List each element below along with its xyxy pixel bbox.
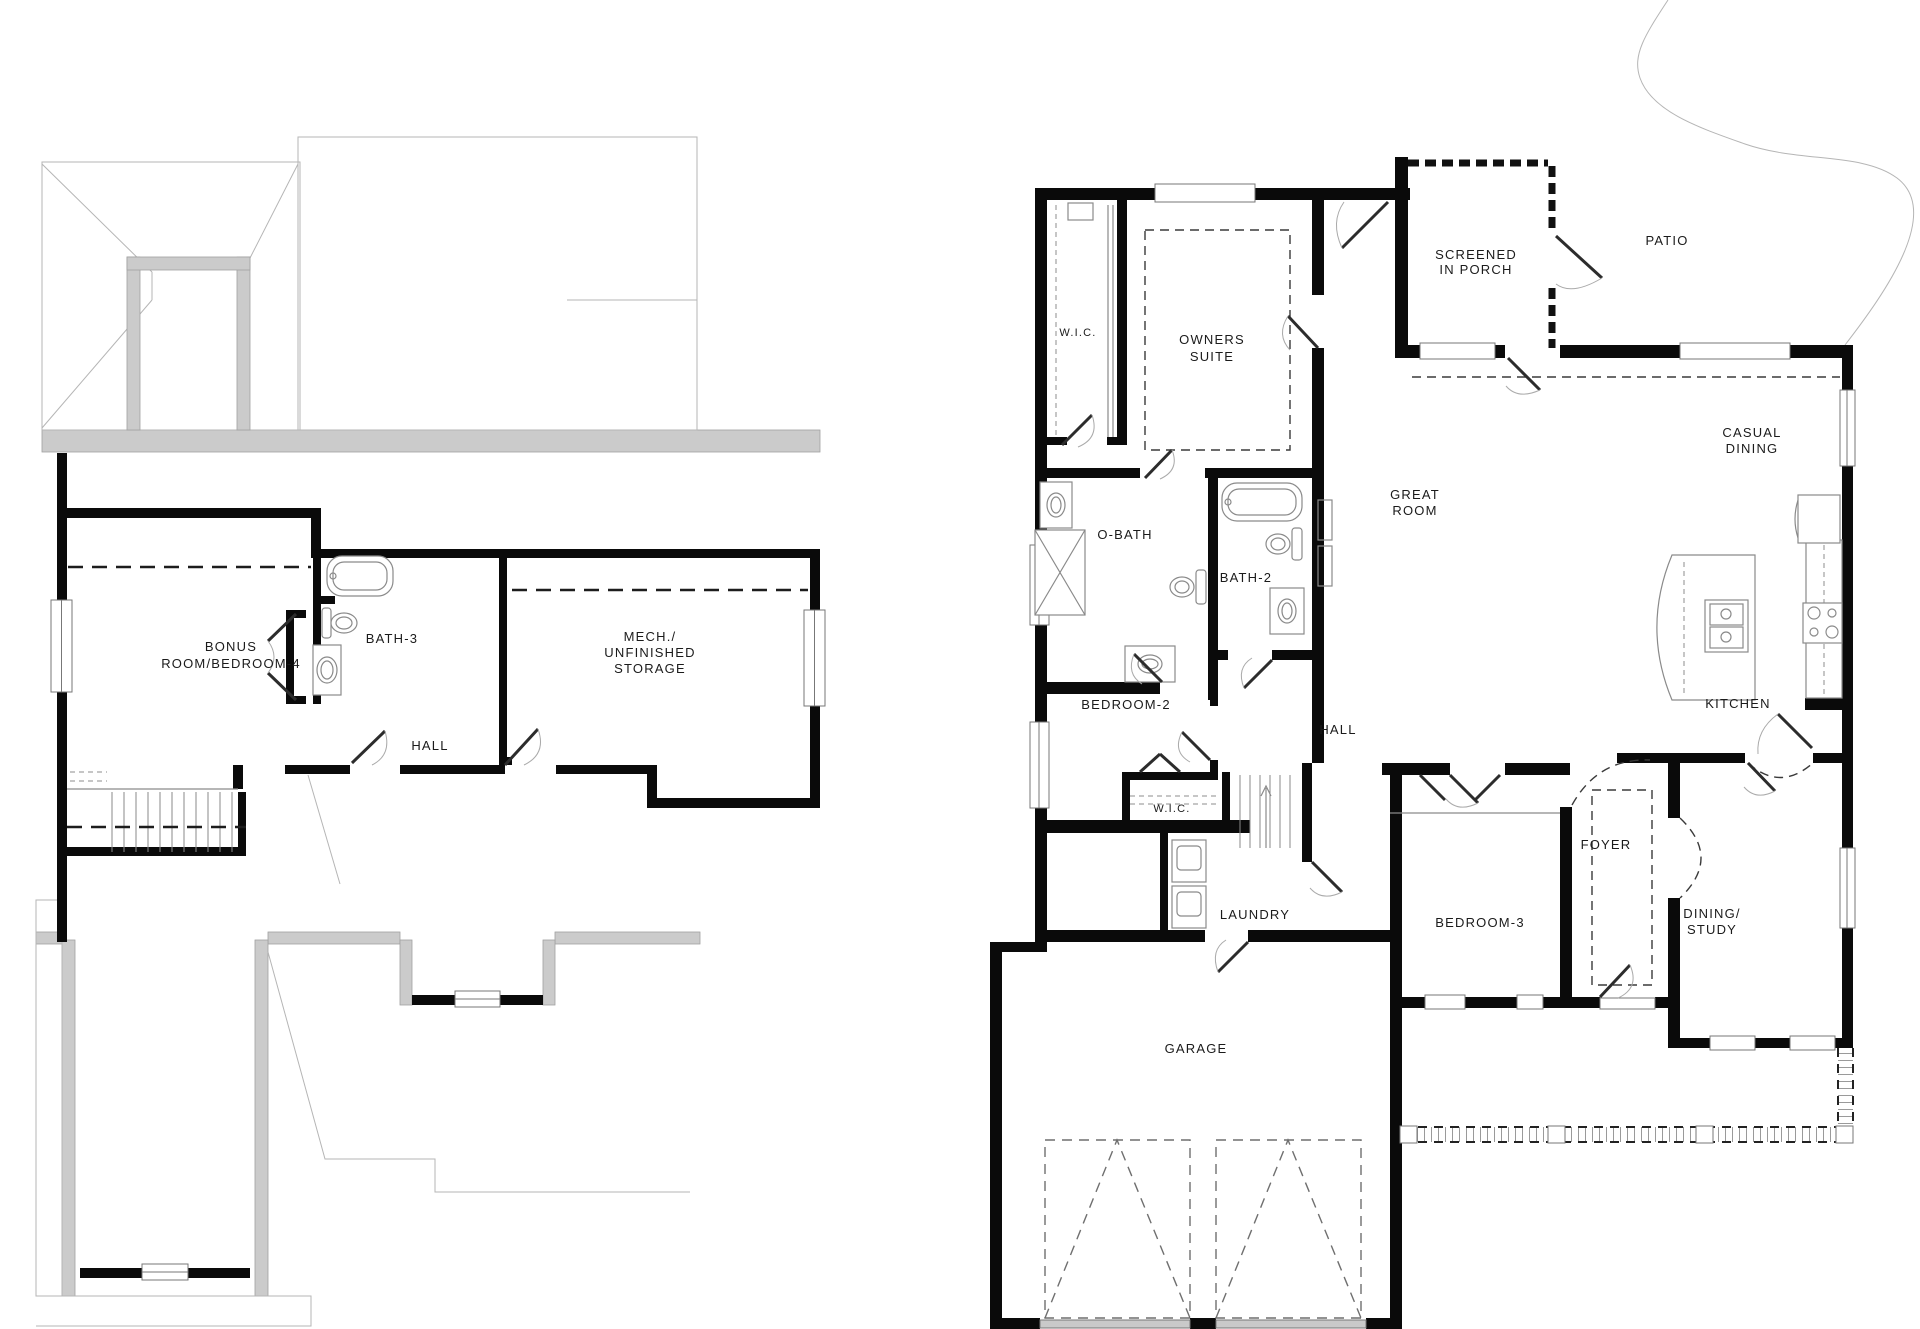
- right-plan-stairs: [1240, 775, 1290, 848]
- room-label-bonus-line1: BONUS: [205, 639, 257, 654]
- roof-plane-outline: [298, 137, 697, 430]
- cased-opening: [1572, 760, 1650, 805]
- patio-outline: [1638, 0, 1914, 345]
- garage-door-panel: [1216, 1320, 1366, 1328]
- bath3-fixtures: [313, 556, 393, 695]
- room-label-owners-line2: SUITE: [1190, 349, 1234, 364]
- room-label-bedroom2: BEDROOM-2: [1081, 697, 1171, 712]
- room-label-garage: GARAGE: [1165, 1041, 1228, 1056]
- front-porch: [1400, 1048, 1853, 1143]
- left-plan-stairs: [67, 772, 246, 852]
- right-plan: W.I.C. OWNERS SUITE SCREENED IN PORCH PA…: [990, 0, 1914, 1329]
- room-label-great-line2: ROOM: [1392, 503, 1437, 518]
- room-label-mech-line3: STORAGE: [614, 661, 686, 676]
- right-plan-walls: [990, 157, 1853, 1329]
- laundry-fixtures: [1172, 840, 1206, 928]
- left-plan-roof-top: [42, 137, 820, 452]
- room-label-foyer: FOYER: [1581, 837, 1632, 852]
- roof-notch-band: [127, 257, 140, 430]
- porch-post: [1696, 1126, 1713, 1143]
- room-label-bath2: BATH-2: [1220, 570, 1272, 585]
- toilet-bowl: [331, 613, 357, 633]
- roof-notch-band: [127, 257, 250, 270]
- dormer-window-wall: [80, 991, 543, 1280]
- porch-post: [1836, 1126, 1853, 1143]
- island-sink: [1705, 600, 1748, 652]
- dormer-side: [400, 940, 412, 1005]
- room-label-hall2: HALL: [1319, 722, 1356, 737]
- bay-dash: [1748, 763, 1813, 778]
- room-label-great-line1: GREAT: [1390, 487, 1440, 502]
- room-label-screened-line1: SCREENED: [1435, 247, 1517, 262]
- room-label-laundry: LAUNDRY: [1220, 907, 1290, 922]
- roof-notch-band: [237, 257, 250, 430]
- room-label-hall: HALL: [411, 738, 448, 753]
- garage-door-panel: [1040, 1320, 1190, 1328]
- room-label-bath3: BATH-3: [366, 631, 418, 646]
- dormer-side: [255, 940, 268, 1296]
- toilet-bowl: [1170, 577, 1194, 597]
- room-label-kitchen: KITCHEN: [1705, 696, 1770, 711]
- toilet-tank: [1292, 528, 1302, 560]
- room-label-dining-line2: STUDY: [1687, 922, 1737, 937]
- left-plan-windows: [51, 600, 825, 706]
- room-label-screened-line2: IN PORCH: [1439, 262, 1512, 277]
- foyer-ceiling: [1592, 790, 1652, 985]
- room-label-dining-line1: DINING/: [1683, 906, 1741, 921]
- refrigerator: [1798, 495, 1840, 543]
- roof-eave-band: [42, 430, 820, 452]
- floor-plan-drawing: BONUS ROOM/BEDROOM-4 BATH-3 HALL MECH./ …: [0, 0, 1920, 1329]
- room-label-casual-line2: DINING: [1726, 441, 1779, 456]
- room-label-owners-line1: OWNERS: [1179, 332, 1245, 347]
- cased-opening: [1680, 818, 1701, 898]
- left-plan: BONUS ROOM/BEDROOM-4 BATH-3 HALL MECH./ …: [36, 137, 825, 1326]
- room-label-mech-line1: MECH./: [624, 629, 677, 644]
- room-label-mech-line2: UNFINISHED: [604, 645, 695, 660]
- toilet-tank: [322, 608, 331, 638]
- front-door-threshold: [1600, 998, 1655, 1009]
- dormer-side: [543, 940, 555, 1005]
- room-label-patio: PATIO: [1645, 233, 1688, 248]
- room-label-wic-upper: W.I.C.: [1059, 327, 1096, 339]
- left-plan-walls: [57, 453, 820, 942]
- garage-doors: [1040, 1140, 1366, 1328]
- room-label-obath: O-BATH: [1097, 527, 1152, 542]
- toilet-bowl: [1266, 534, 1290, 554]
- obath-fixtures: [1035, 482, 1206, 682]
- room-label-wic-lower: W.I.C.: [1153, 803, 1190, 815]
- kitchen-fixtures: [1657, 495, 1842, 700]
- porch-post: [1400, 1126, 1417, 1143]
- dormer-side: [62, 940, 75, 1296]
- floor-plan-canvas: BONUS ROOM/BEDROOM-4 BATH-3 HALL MECH./ …: [0, 0, 1920, 1329]
- toilet-tank: [1196, 570, 1206, 604]
- left-plan-roof-bottom: [36, 775, 700, 1326]
- room-label-bedroom3: BEDROOM-3: [1435, 915, 1525, 930]
- room-label-casual-line1: CASUAL: [1722, 425, 1781, 440]
- porch-post: [1548, 1126, 1565, 1143]
- room-label-bonus-line2: ROOM/BEDROOM-4: [161, 656, 301, 671]
